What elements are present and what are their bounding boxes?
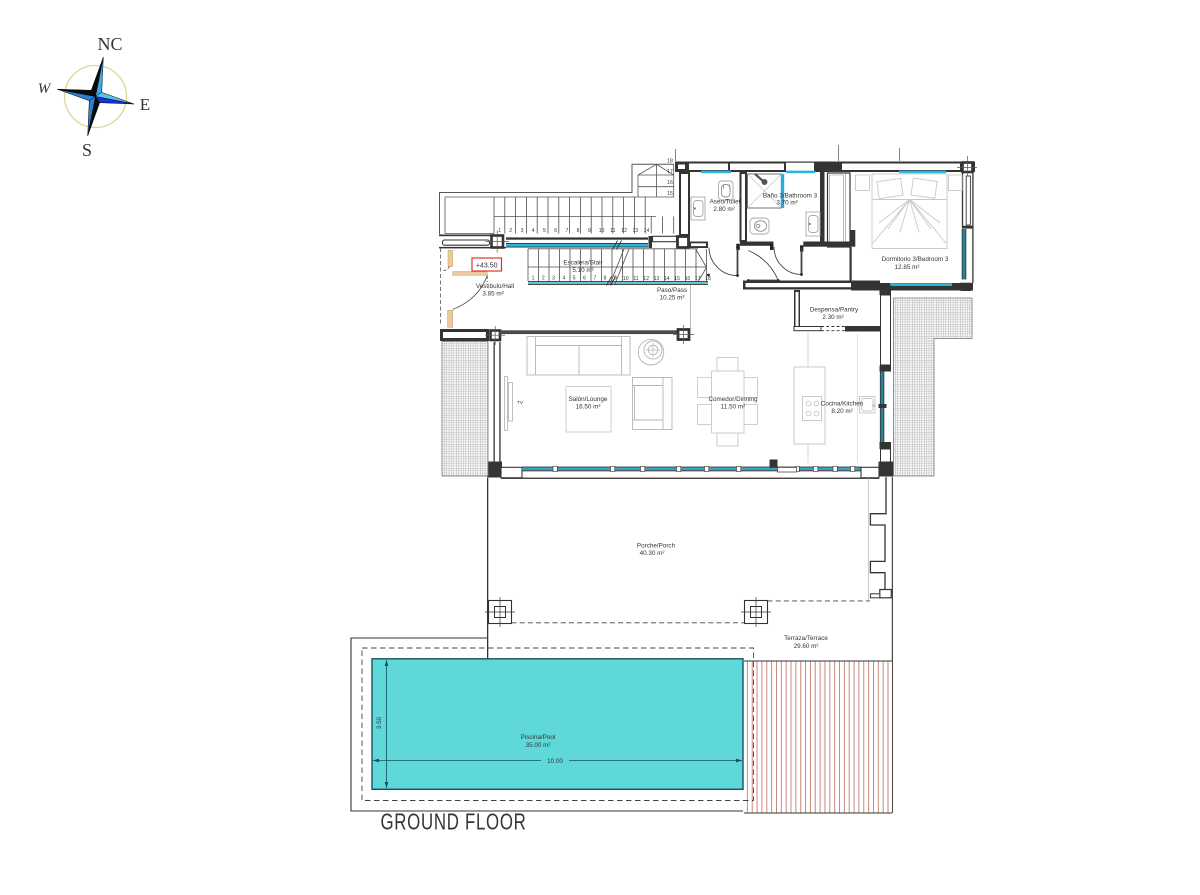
svg-text:Cocina/Kitchen: Cocina/Kitchen — [821, 401, 864, 408]
svg-text:Dormitorio 3/Bedroom 3: Dormitorio 3/Bedroom 3 — [882, 256, 949, 263]
svg-text:8.20 m²: 8.20 m² — [831, 408, 852, 415]
svg-text:6: 6 — [583, 276, 586, 282]
svg-text:18: 18 — [667, 159, 673, 165]
svg-text:Vestibulo/Hall: Vestibulo/Hall — [476, 283, 514, 290]
svg-text:16.50 m²: 16.50 m² — [576, 404, 601, 411]
svg-text:7: 7 — [593, 276, 596, 282]
svg-text:10: 10 — [623, 276, 629, 282]
svg-text:11: 11 — [633, 276, 638, 282]
svg-text:3.70 m²: 3.70 m² — [776, 200, 797, 207]
svg-text:5.10 m²: 5.10 m² — [572, 267, 593, 274]
svg-text:Aseo/Toilet: Aseo/Toilet — [710, 199, 741, 206]
svg-text:18: 18 — [705, 276, 711, 282]
svg-text:2.30 m²: 2.30 m² — [822, 314, 843, 321]
svg-text:16: 16 — [667, 180, 673, 186]
svg-text:16: 16 — [685, 276, 691, 282]
svg-text:Baño 3/Bathroom 3: Baño 3/Bathroom 3 — [763, 193, 818, 200]
svg-text:Piscina/Pool: Piscina/Pool — [521, 734, 556, 741]
svg-text:NC: NC — [97, 34, 122, 54]
svg-text:Comedor/Dinning: Comedor/Dinning — [708, 396, 757, 403]
svg-text:2: 2 — [542, 276, 545, 282]
svg-text:Despensa/Pantry: Despensa/Pantry — [810, 307, 859, 314]
svg-text:10.00: 10.00 — [547, 758, 563, 765]
svg-text:1: 1 — [498, 228, 501, 234]
svg-text:6: 6 — [554, 228, 557, 234]
svg-text:12: 12 — [621, 228, 627, 234]
svg-text:2: 2 — [509, 228, 512, 234]
svg-text:2.80 m²: 2.80 m² — [713, 206, 734, 213]
svg-text:W: W — [38, 81, 52, 97]
svg-text:Terraza/Terrace: Terraza/Terrace — [784, 635, 828, 642]
svg-text:17: 17 — [667, 169, 673, 175]
svg-text:11.50 m²: 11.50 m² — [721, 404, 745, 411]
svg-text:12.85 m²: 12.85 m² — [895, 264, 920, 271]
svg-text:12: 12 — [643, 276, 649, 282]
svg-text:4: 4 — [532, 228, 535, 234]
svg-text:+43.50: +43.50 — [476, 263, 498, 270]
svg-text:5: 5 — [543, 228, 546, 234]
svg-text:Escalera/Stair: Escalera/Stair — [563, 260, 602, 267]
svg-text:GROUND FLOOR: GROUND FLOOR — [381, 809, 527, 835]
svg-text:Paso/Pass: Paso/Pass — [657, 287, 687, 294]
svg-text:17: 17 — [695, 276, 701, 282]
svg-text:35.00 m²: 35.00 m² — [526, 742, 551, 749]
svg-text:14: 14 — [664, 276, 670, 282]
svg-text:8: 8 — [604, 276, 607, 282]
svg-text:8: 8 — [577, 228, 580, 234]
svg-text:15: 15 — [667, 191, 673, 197]
svg-text:3.50: 3.50 — [376, 716, 383, 729]
svg-text:40.30 m²: 40.30 m² — [640, 550, 665, 557]
svg-text:9: 9 — [588, 228, 591, 234]
svg-text:1: 1 — [532, 276, 535, 282]
svg-text:13: 13 — [632, 228, 638, 234]
svg-text:13: 13 — [654, 276, 660, 282]
svg-text:3.85 m²: 3.85 m² — [482, 291, 503, 298]
svg-text:11: 11 — [610, 228, 615, 234]
svg-text:10.25 m²: 10.25 m² — [660, 295, 685, 302]
svg-text:Salón/Lounge: Salón/Lounge — [569, 396, 608, 403]
svg-text:7: 7 — [565, 228, 568, 234]
svg-text:TV: TV — [517, 400, 524, 406]
svg-text:4: 4 — [562, 276, 565, 282]
svg-text:10: 10 — [599, 228, 605, 234]
svg-text:14: 14 — [644, 228, 650, 234]
svg-text:5: 5 — [573, 276, 576, 282]
svg-text:29.60 m²: 29.60 m² — [794, 643, 819, 650]
svg-text:9: 9 — [614, 276, 617, 282]
svg-text:E: E — [140, 95, 150, 114]
svg-text:Porche/Porch: Porche/Porch — [637, 543, 676, 550]
svg-text:3: 3 — [552, 276, 555, 282]
svg-text:15: 15 — [674, 276, 680, 282]
svg-text:S: S — [82, 140, 92, 160]
svg-text:3: 3 — [521, 228, 524, 234]
